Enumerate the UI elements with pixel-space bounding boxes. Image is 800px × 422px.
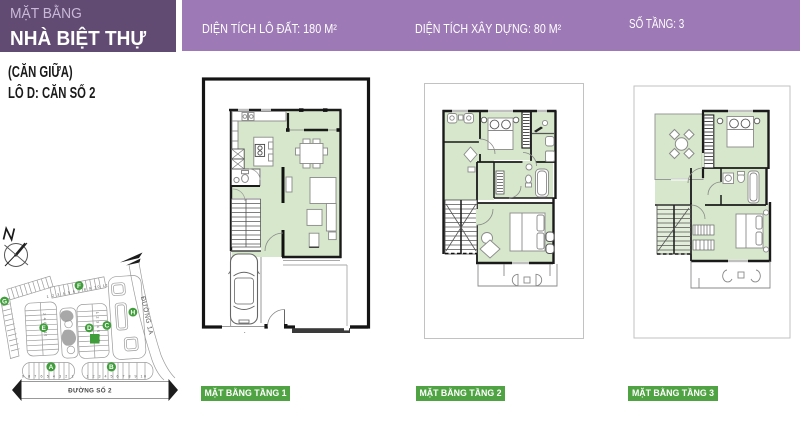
svg-text:H: H bbox=[131, 309, 136, 316]
svg-text:F: F bbox=[77, 283, 81, 290]
svg-text:G: G bbox=[2, 298, 7, 305]
svg-text:1 2 3 4 5 6 7 8 9 10: 1 2 3 4 5 6 7 8 9 10 bbox=[87, 375, 148, 379]
svg-text:ĐƯỜNG 1A: ĐƯỜNG 1A bbox=[139, 295, 156, 335]
svg-text:C: C bbox=[105, 323, 110, 330]
svg-text:A: A bbox=[49, 364, 54, 371]
svg-text:D: D bbox=[87, 325, 92, 332]
svg-text:B: B bbox=[109, 364, 114, 371]
svg-text:ĐƯỜNG SỐ 2: ĐƯỜNG SỐ 2 bbox=[68, 385, 112, 395]
svg-text:9 8 7 6 5 4 3 2 1: 9 8 7 6 5 4 3 2 1 bbox=[22, 375, 75, 379]
svg-text:E: E bbox=[42, 325, 47, 332]
